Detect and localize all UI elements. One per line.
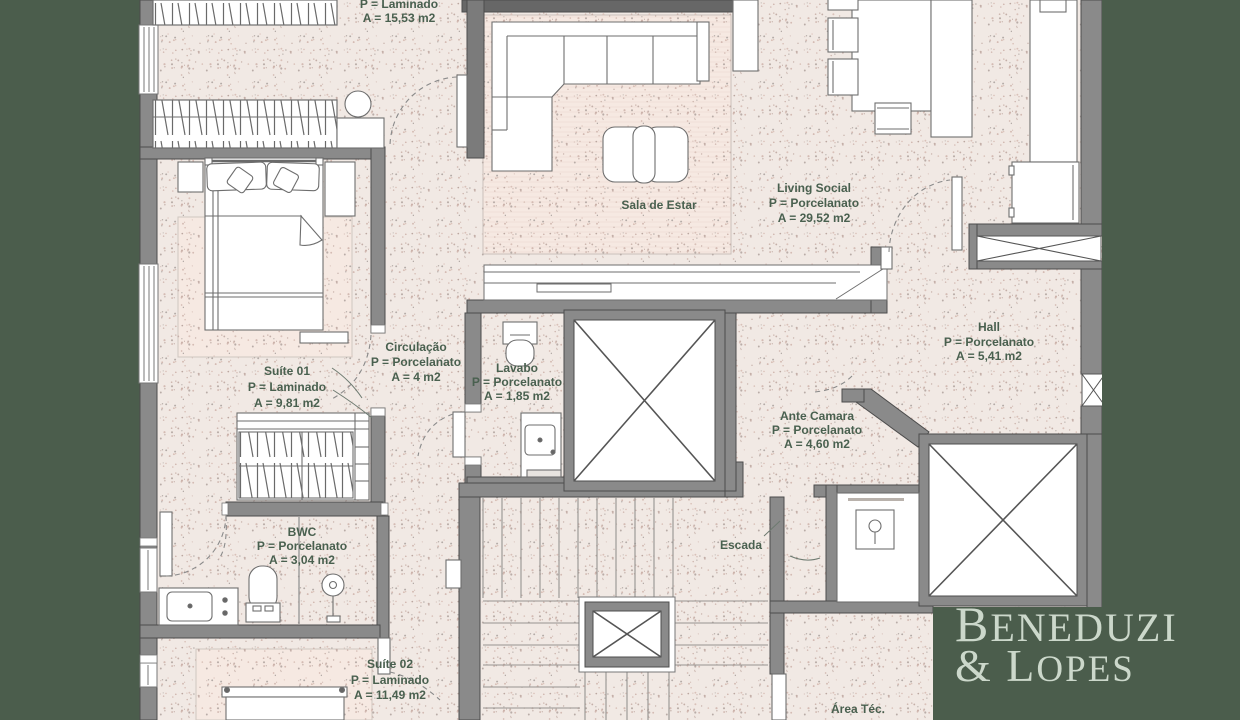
svg-text:Sala de Estar: Sala de Estar: [621, 198, 697, 212]
svg-text:Circulação: Circulação: [385, 340, 446, 354]
svg-text:A = 15,53 m2: A = 15,53 m2: [363, 11, 436, 25]
svg-text:A = 29,52 m2: A = 29,52 m2: [778, 211, 851, 225]
svg-text:Suíte 01: Suíte 01: [264, 364, 310, 378]
svg-text:P = Porcelanato: P = Porcelanato: [472, 375, 562, 389]
svg-text:P = Porcelanato: P = Porcelanato: [772, 423, 862, 437]
svg-text:A = 4 m2: A = 4 m2: [391, 370, 441, 384]
svg-text:Hall: Hall: [978, 320, 1000, 334]
svg-text:A = 11,49 m2: A = 11,49 m2: [354, 688, 426, 702]
svg-text:A = 4,60 m2: A = 4,60 m2: [784, 437, 850, 451]
svg-text:BWC: BWC: [288, 525, 317, 539]
svg-text:Living Social: Living Social: [777, 181, 851, 195]
svg-text:Área Téc.: Área Téc.: [831, 701, 885, 716]
svg-text:Ante Camara: Ante Camara: [780, 409, 854, 423]
svg-text:A = 1,85 m2: A = 1,85 m2: [484, 389, 550, 403]
svg-text:A = 3,04 m2: A = 3,04 m2: [269, 553, 335, 567]
svg-text:P = Laminado: P = Laminado: [360, 0, 438, 11]
svg-text:P = Laminado: P = Laminado: [248, 380, 326, 394]
svg-text:A = 9,81 m2: A = 9,81 m2: [254, 396, 320, 410]
svg-text:Suíte 02: Suíte 02: [367, 657, 413, 671]
svg-text:Lavabo: Lavabo: [496, 361, 538, 375]
svg-text:P = Porcelanato: P = Porcelanato: [371, 355, 461, 369]
svg-text:P = Porcelanato: P = Porcelanato: [769, 196, 859, 210]
svg-text:P = Porcelanato: P = Porcelanato: [257, 539, 347, 553]
svg-text:P = Laminado: P = Laminado: [351, 673, 429, 687]
svg-text:P = Porcelanato: P = Porcelanato: [944, 335, 1034, 349]
svg-text:Escada: Escada: [720, 538, 762, 552]
svg-text:A = 5,41 m2: A = 5,41 m2: [956, 349, 1022, 363]
